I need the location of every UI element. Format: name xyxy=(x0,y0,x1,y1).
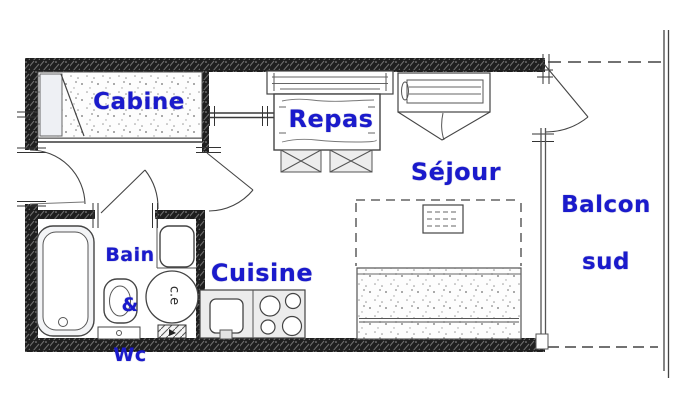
bench-seat xyxy=(267,71,393,94)
entry-door xyxy=(30,150,85,204)
tick-closet-right xyxy=(263,106,268,126)
side-table xyxy=(423,205,463,233)
sofa-bed xyxy=(398,73,490,112)
water-heater-label: c.e xyxy=(166,282,181,308)
sofa-drape xyxy=(398,112,490,140)
balcony-railing xyxy=(664,30,669,378)
wall-cabine-right xyxy=(202,72,209,152)
pullout-bed xyxy=(357,268,521,339)
bathroom-door xyxy=(101,170,158,213)
tick-closet-left xyxy=(210,106,215,126)
wall-top xyxy=(25,58,545,72)
floor-plan: Cabine Repas Séjour Balcon sud Bain & Wc… xyxy=(0,0,700,416)
cabine-label: Cabine xyxy=(89,89,189,115)
window-wall-base xyxy=(536,334,548,349)
folding-chair-2 xyxy=(330,150,372,172)
balcony-door xyxy=(544,64,588,132)
partition-hall-closet xyxy=(209,113,275,118)
balcon-label: Balcon sud xyxy=(551,162,661,306)
cuisine-label: Cuisine xyxy=(210,260,314,288)
balcon-label-line1: Balcon xyxy=(551,191,661,220)
bain-label-line1: Bain xyxy=(94,243,166,268)
cabin-door xyxy=(207,153,253,211)
bathtub xyxy=(37,226,94,336)
kitchen-sink xyxy=(210,299,243,333)
bain-label-line2: & xyxy=(94,293,166,318)
repas-label: Repas xyxy=(281,106,381,134)
bain-wc-label: Bain & Wc xyxy=(94,218,166,394)
wall-left-upper xyxy=(25,58,38,150)
cuisine-zone xyxy=(200,290,305,339)
sofa-drape-crease xyxy=(442,113,444,140)
sink-tap xyxy=(220,330,232,339)
window-wall xyxy=(541,128,546,336)
tick-window-top xyxy=(532,134,554,142)
bunk-bed xyxy=(40,74,62,136)
balcon-label-line2: sud xyxy=(551,248,661,277)
wall-left-lower xyxy=(25,204,38,352)
bain-label-line3: Wc xyxy=(94,343,166,368)
partition-cabine-bottom xyxy=(38,138,202,142)
wall-bath-top-left xyxy=(38,210,95,219)
sejour-label: Séjour xyxy=(406,159,506,187)
folding-chair-1 xyxy=(281,150,321,172)
